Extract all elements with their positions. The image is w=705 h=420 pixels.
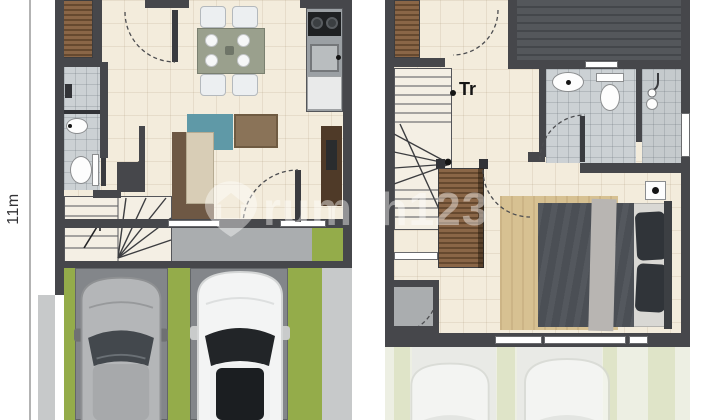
window	[544, 336, 626, 344]
wall	[343, 0, 352, 228]
dimension-line	[29, 0, 31, 420]
side-path	[38, 295, 55, 420]
dimension-label: 11m	[5, 187, 23, 231]
door-swing-arc	[125, 10, 177, 64]
bed-blanket	[538, 203, 634, 327]
sofa-ottoman	[172, 204, 214, 220]
plate-icon	[237, 54, 250, 67]
toilet-tank	[596, 73, 624, 82]
stairs	[64, 196, 172, 262]
bathroom-door-leaf	[101, 158, 106, 186]
plate-icon	[237, 34, 250, 47]
floorplan-image: 11m	[0, 0, 705, 420]
tr-label: Tr	[459, 79, 476, 100]
window	[168, 220, 220, 227]
wall	[385, 0, 394, 347]
wall	[55, 0, 64, 295]
ghost-car	[404, 351, 496, 420]
wall	[508, 0, 517, 69]
bed-throw	[588, 199, 616, 332]
car-silver	[74, 268, 168, 420]
dining-chair	[200, 6, 226, 28]
burner-icon	[326, 17, 338, 29]
bathroom-divider-wall	[64, 110, 100, 114]
ghost-grass-strip	[497, 347, 515, 420]
wall	[100, 62, 108, 158]
wood-deck	[394, 0, 420, 58]
window	[629, 336, 648, 344]
coffee-table	[234, 114, 278, 148]
lamp-icon	[652, 187, 659, 194]
wall	[55, 58, 102, 67]
wall	[580, 163, 682, 173]
window	[681, 113, 690, 157]
faucet-icon	[336, 55, 341, 60]
dining-chair	[200, 74, 226, 96]
door-swing-arc	[453, 10, 498, 55]
faucet-icon	[68, 124, 72, 128]
toilet-tank	[92, 154, 99, 186]
terrace	[172, 228, 312, 262]
dining-chair	[232, 74, 258, 96]
window	[495, 336, 542, 344]
pillow	[635, 211, 667, 261]
shower-icon	[65, 84, 72, 98]
pillow	[635, 263, 667, 313]
roof	[517, 0, 681, 60]
ghost-carport	[385, 347, 690, 420]
faucet-icon	[566, 80, 571, 85]
dining-chair	[232, 6, 258, 28]
grass-patch	[312, 228, 343, 262]
door-swing-arc	[243, 170, 298, 225]
stair-landing-rail	[394, 252, 438, 260]
door-swing-arc	[483, 170, 530, 217]
car-white	[190, 262, 290, 420]
tr-marker-dot	[450, 90, 456, 96]
wall	[385, 58, 445, 67]
ghost-grass-strip	[648, 347, 675, 420]
door-swing-arc	[540, 115, 585, 160]
headboard	[664, 201, 672, 329]
wall	[300, 0, 343, 8]
counter-cabinet	[307, 76, 342, 110]
wall	[145, 0, 189, 8]
wall	[388, 280, 439, 287]
kitchen-sink-icon	[310, 44, 339, 72]
under-stair-storage	[117, 162, 141, 192]
plate-icon	[205, 54, 218, 67]
wall	[681, 0, 690, 347]
bathroom-window	[585, 61, 618, 68]
toilet-icon	[600, 84, 620, 111]
burner-icon	[311, 17, 323, 29]
wall	[93, 0, 102, 60]
shower-partition-wall	[636, 69, 642, 142]
wall	[385, 326, 439, 334]
side-path	[322, 268, 352, 420]
toilet-icon	[70, 156, 92, 184]
ghost-car	[517, 349, 617, 420]
sofa	[186, 132, 214, 204]
wall	[343, 228, 352, 262]
tv-icon	[326, 140, 337, 170]
table-centerpiece	[225, 46, 234, 55]
plate-icon	[205, 34, 218, 47]
shower-drain	[646, 98, 658, 110]
